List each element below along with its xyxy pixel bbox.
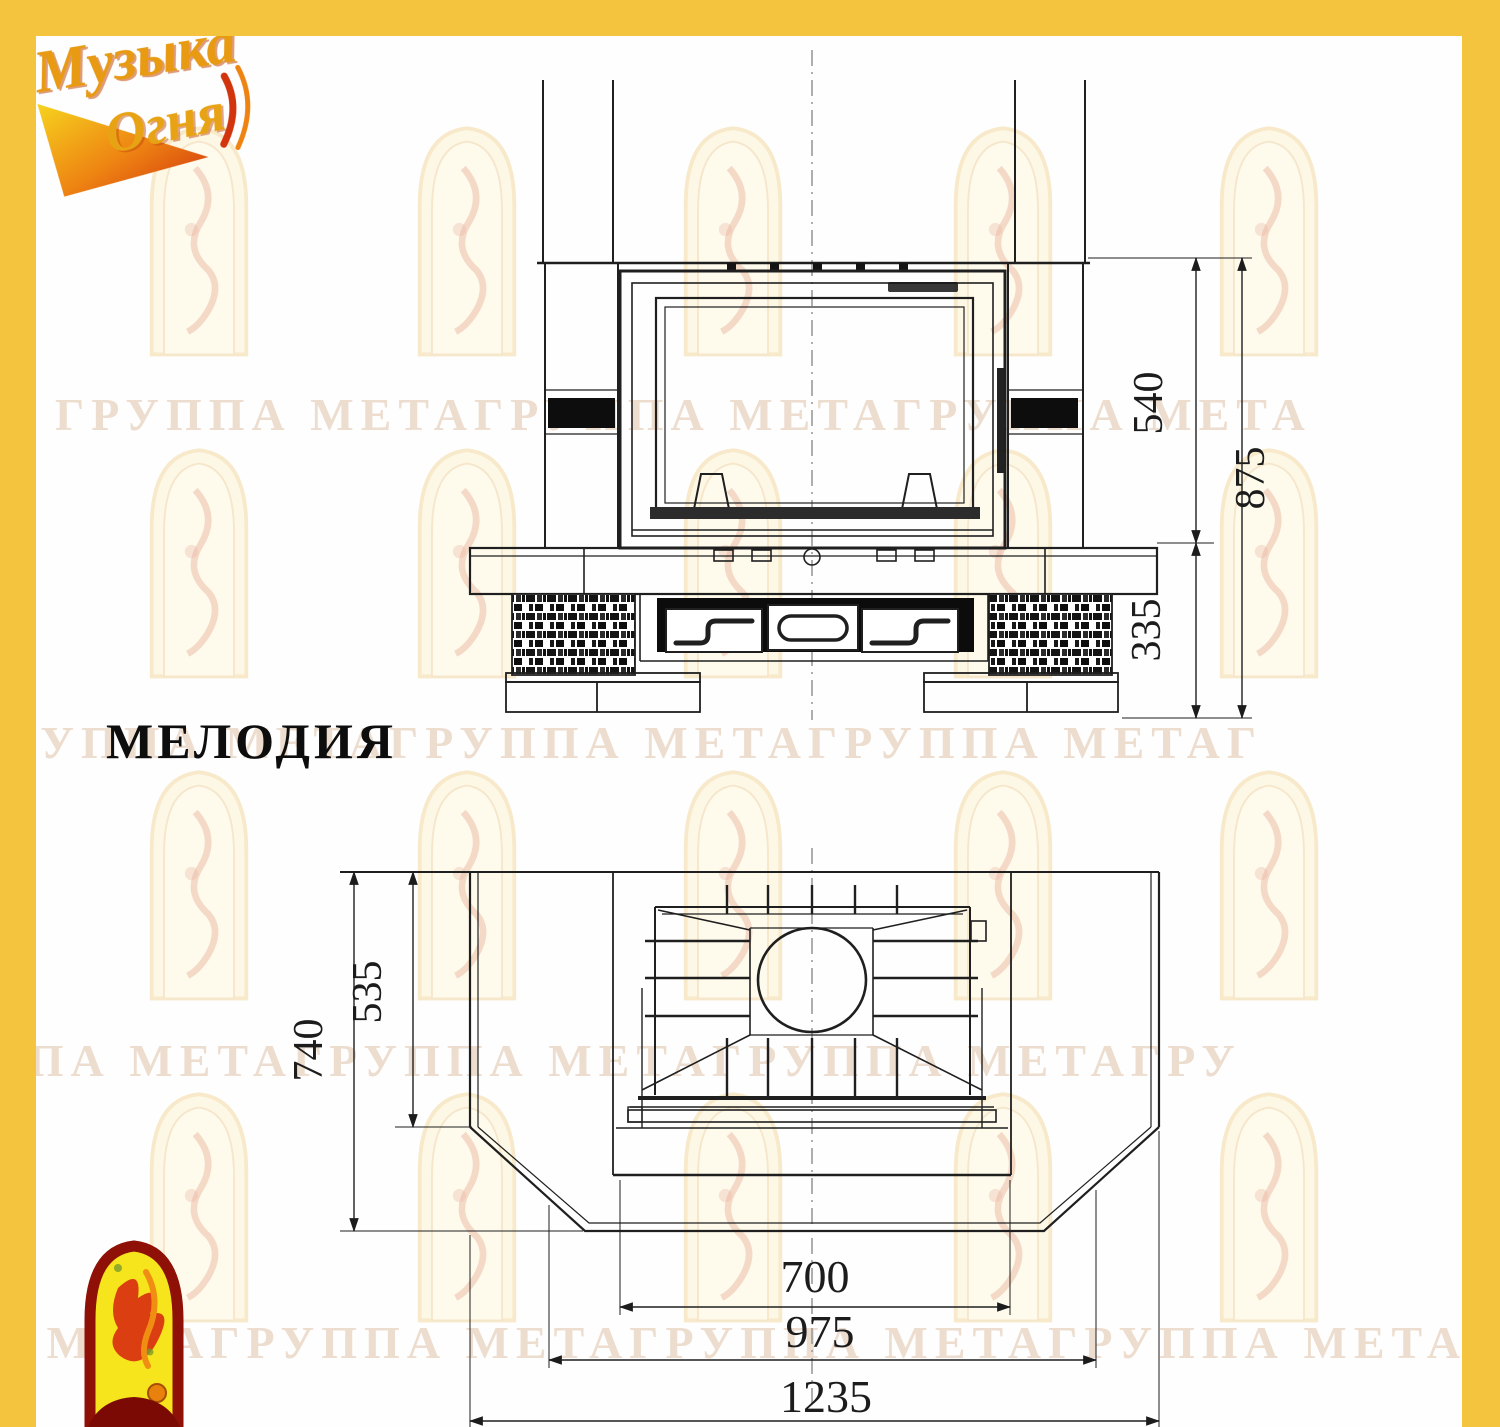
model-title: МЕЛОДИЯ [106, 712, 397, 770]
brand-plate-icon [888, 282, 958, 292]
brand-logo: Музыка Огня [21, 14, 280, 212]
side-vent [548, 398, 615, 428]
center-panel [768, 605, 858, 650]
dim-label-535: 535 [345, 961, 391, 1024]
door-handle [997, 368, 1004, 473]
arch-watermark-icon [686, 772, 781, 998]
mantel-shelf [470, 548, 1157, 594]
arch-watermark-icon [686, 128, 781, 354]
scroll-panel [666, 609, 762, 652]
page-border-right [1462, 0, 1500, 1427]
arch-watermark-icon [420, 1094, 515, 1320]
firebird-emblem-icon [88, 1246, 180, 1427]
page-border-top [0, 0, 1500, 36]
scroll-panel [862, 609, 958, 652]
dim-label-975: 975 [786, 1306, 855, 1357]
arch-watermark-icon [152, 772, 247, 998]
arch-watermark-icon [420, 128, 515, 354]
arch-watermark-icon [1222, 1094, 1317, 1320]
arch-watermark-icon [420, 772, 515, 998]
arch-watermark-icon [152, 450, 247, 676]
dim-label-335: 335 [1124, 599, 1170, 662]
door-sill [650, 507, 980, 519]
page-border-left [0, 0, 36, 1427]
mosaic-pillar [512, 594, 635, 675]
side-vent [1011, 398, 1078, 428]
dim-label-1235: 1235 [780, 1371, 872, 1422]
dim-label-740: 740 [286, 1019, 332, 1082]
andiron [902, 474, 937, 509]
dim-label-875: 875 [1228, 447, 1274, 510]
dim-label-540: 540 [1126, 372, 1172, 435]
mosaic-pillar [989, 594, 1112, 675]
arch-watermark-icon [1222, 772, 1317, 998]
spec-sheet-page: { "page": { "background": "#ffffff", "bo… [0, 0, 1500, 1427]
dim-label-700: 700 [781, 1251, 850, 1302]
arch-watermark-icon [1222, 128, 1317, 354]
arch-watermark-icon [420, 450, 515, 676]
arch-watermark-icon [956, 128, 1051, 354]
